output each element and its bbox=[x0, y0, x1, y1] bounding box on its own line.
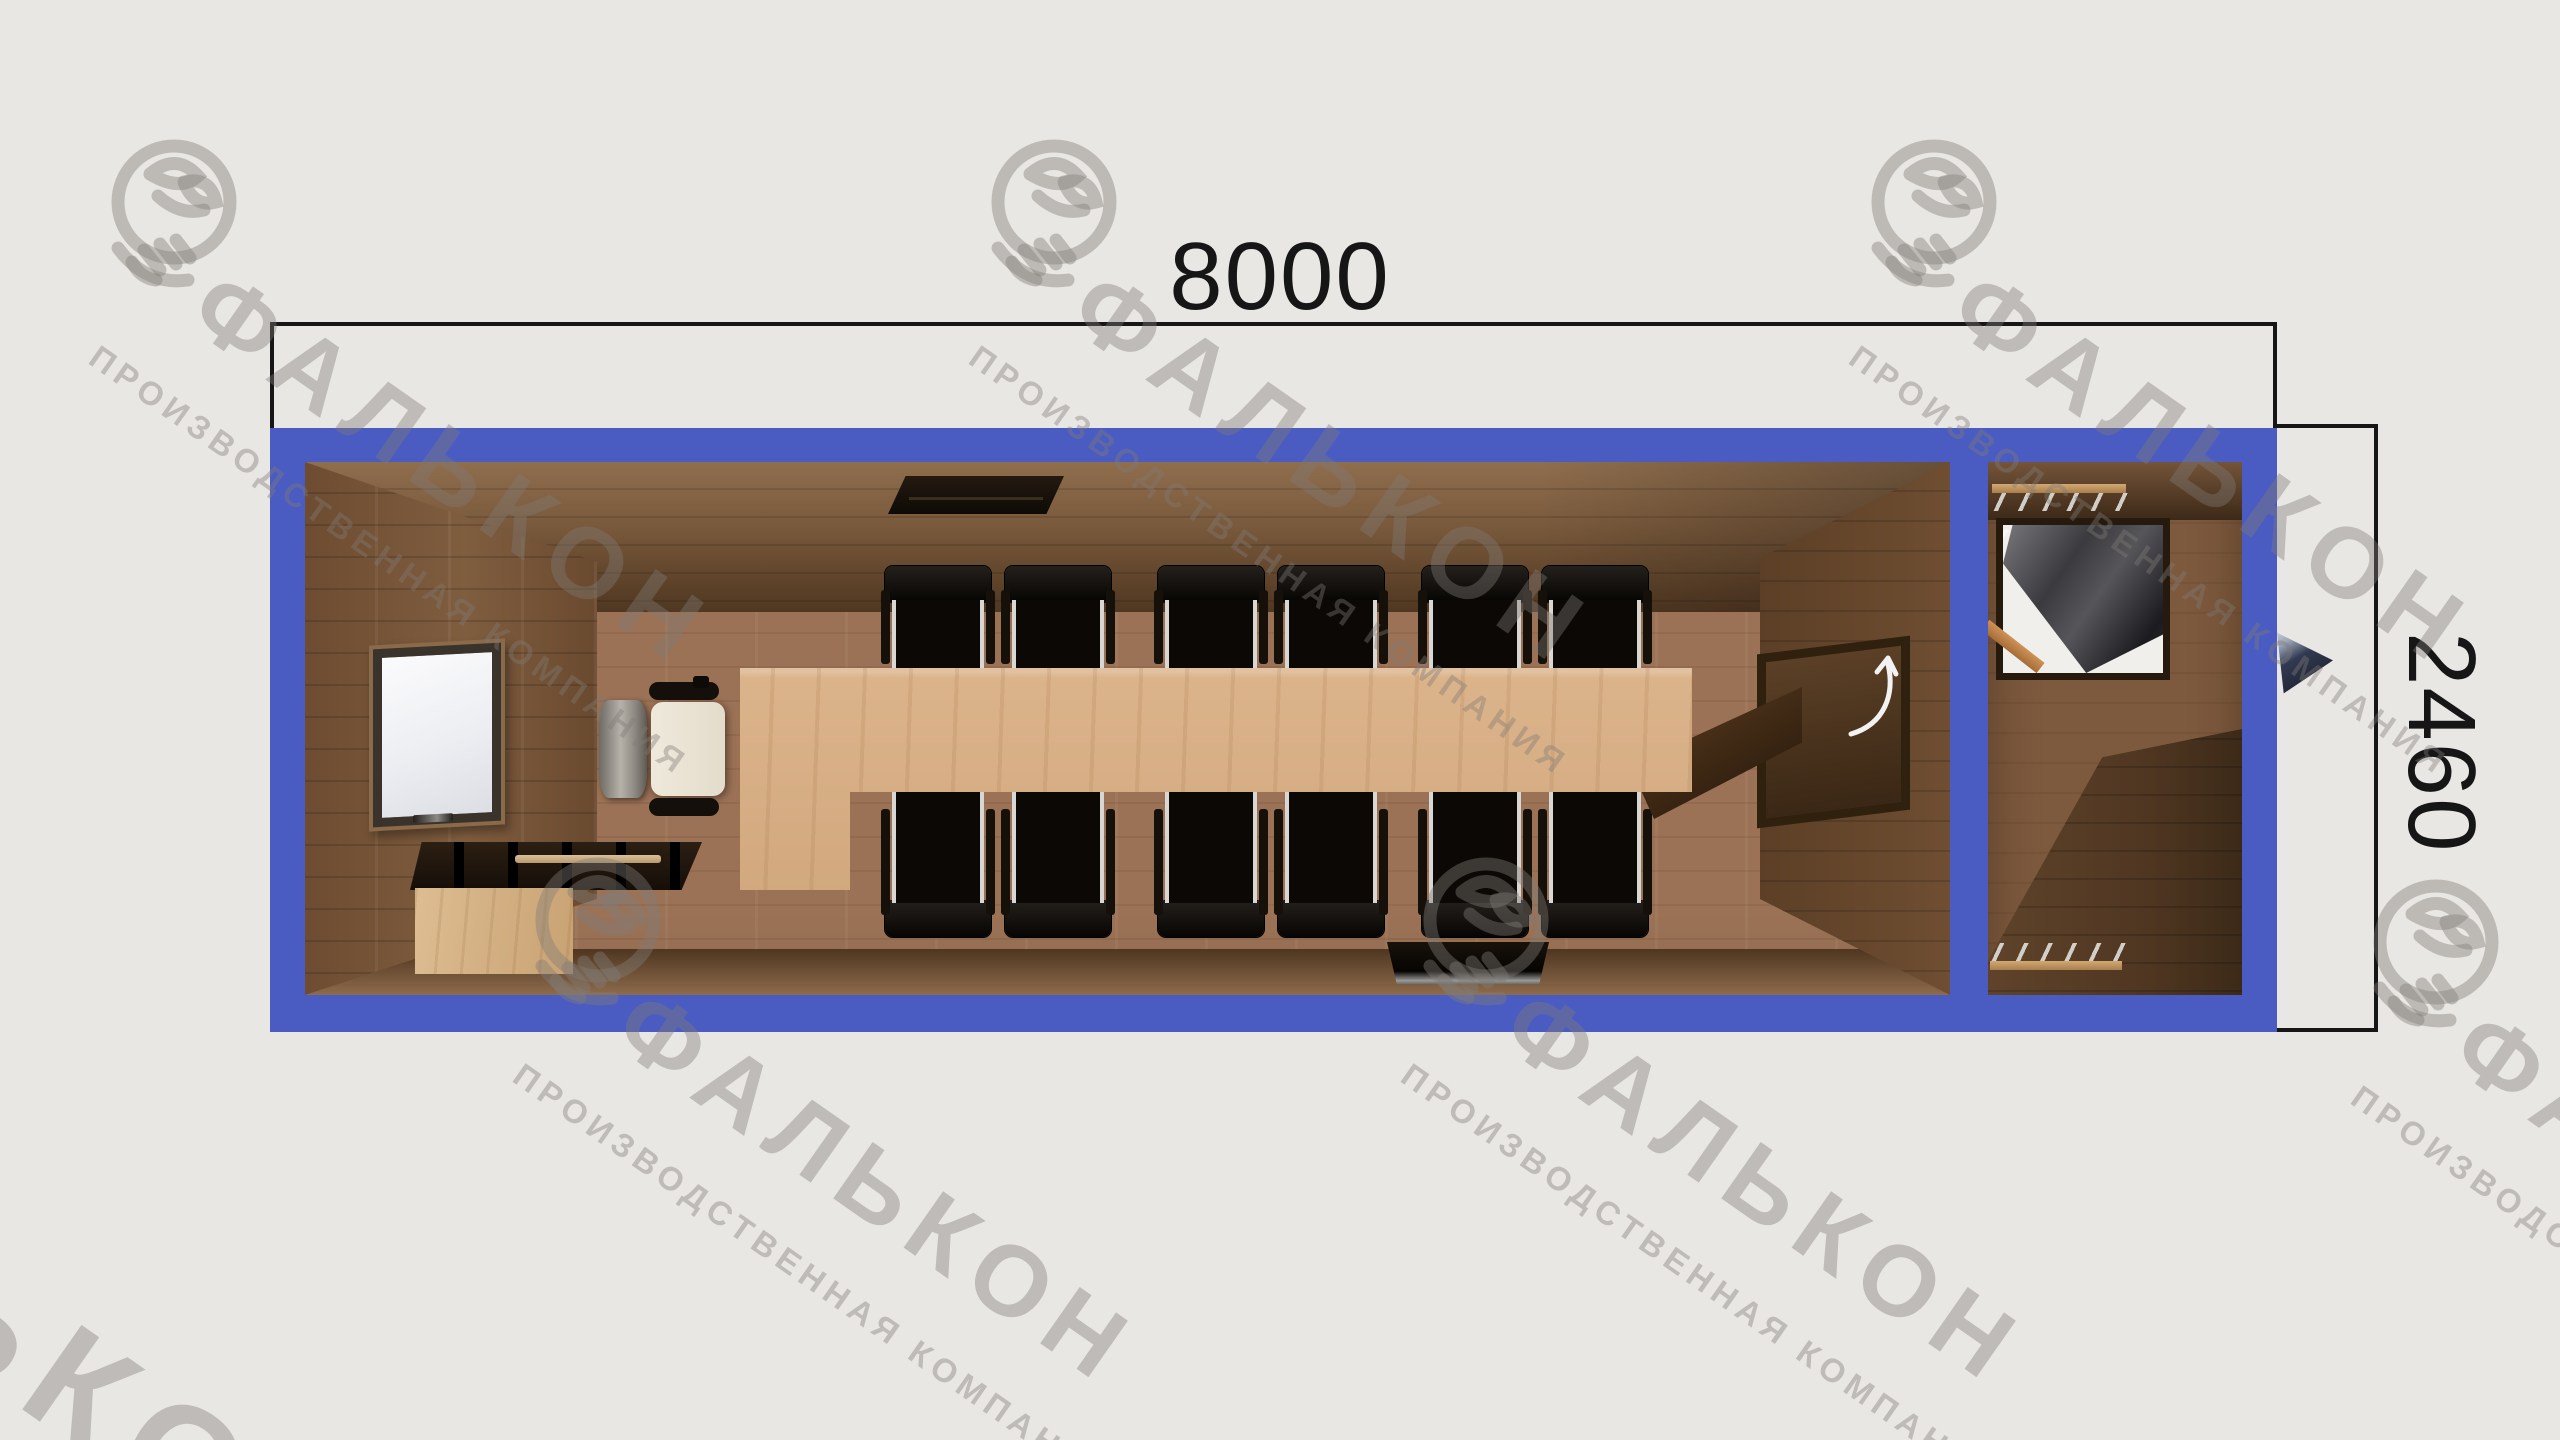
executive-chair-icon bbox=[597, 684, 747, 814]
convector-heater-icon bbox=[1387, 942, 1549, 984]
door-swing-arrow-icon bbox=[1843, 654, 1907, 742]
window-icon bbox=[369, 638, 505, 831]
meeting-room bbox=[305, 462, 1950, 995]
watermark-tile: ФАЛЬКОН ПРОИЗВОДСТВЕННАЯ КОМПАНИЯ bbox=[2350, 870, 2560, 1440]
dimension-label-height: 2460 bbox=[2386, 598, 2496, 888]
watermark-subtitle: ПРОИЗВОДСТВЕННАЯ КОМПАНИЯ bbox=[2344, 1078, 2560, 1440]
falcon-logo-icon bbox=[1848, 130, 2013, 295]
coat-hooks-icon bbox=[1990, 943, 2128, 961]
entry-vestibule bbox=[1988, 462, 2242, 995]
chair-armrest bbox=[649, 798, 719, 816]
visitor-chair bbox=[1542, 785, 1648, 937]
visitor-chair bbox=[885, 566, 991, 672]
watermark-brand: ФАЛЬКОН bbox=[1482, 966, 2045, 1409]
chair-headrest bbox=[693, 676, 709, 688]
entry-canopy-icon bbox=[2277, 630, 2333, 696]
watermark-brand: ФАЛЬКОН bbox=[2432, 988, 2560, 1431]
visitor-chair bbox=[1422, 566, 1528, 672]
visitor-chair bbox=[1005, 566, 1111, 672]
dimension-label-width: 8000 bbox=[1050, 222, 1510, 332]
watermark-subtitle: ПРОИЗВОДСТВЕННАЯ КОМПАНИЯ bbox=[1394, 1056, 2008, 1440]
visitor-chair bbox=[1005, 785, 1111, 937]
coat-rail-icon bbox=[1990, 961, 2122, 970]
window-glass bbox=[373, 643, 501, 828]
visitor-chair bbox=[1422, 785, 1528, 937]
watermark-brand: ФАЛЬКОН bbox=[0, 987, 403, 1440]
falcon-logo-icon bbox=[88, 130, 253, 295]
visitor-chair bbox=[1542, 566, 1648, 672]
sideboard-front bbox=[415, 888, 573, 974]
chair-seat bbox=[651, 702, 725, 796]
chair-backrest bbox=[599, 700, 647, 798]
sideboard-rail bbox=[515, 855, 661, 863]
dimension-extension-top-right bbox=[2273, 322, 2277, 428]
visitor-chair bbox=[885, 785, 991, 937]
dimension-extension-top-left bbox=[270, 322, 274, 428]
visitor-chair bbox=[1278, 785, 1384, 937]
coat-hooks-icon bbox=[1992, 493, 2132, 511]
sideboard-top bbox=[410, 842, 702, 890]
entry-door-edge-highlight bbox=[1996, 528, 2009, 642]
visitor-chair bbox=[1278, 566, 1384, 672]
dimension-extension-right-bottom bbox=[2277, 1028, 2378, 1032]
ceiling-vent-icon bbox=[888, 476, 1064, 514]
dimension-extension-right-top bbox=[2277, 424, 2378, 428]
visitor-chair bbox=[1158, 566, 1264, 672]
coat-rail-icon bbox=[1992, 484, 2126, 493]
watermark-brand: ФАЛЬКОН bbox=[594, 966, 1157, 1409]
watermark-subtitle: ПРОИЗВОДСТВЕННАЯ КОМПАНИЯ bbox=[506, 1056, 1120, 1440]
floor-plan-render: 8000 2460 bbox=[0, 0, 2560, 1440]
container-blue-frame bbox=[270, 428, 2277, 1032]
visitor-chair bbox=[1158, 785, 1264, 937]
watermark-subtitle: ПРОИЗВОДСТВЕННАЯ КОМПАНИЯ bbox=[0, 1122, 347, 1440]
dimension-line-right bbox=[2374, 424, 2378, 1032]
